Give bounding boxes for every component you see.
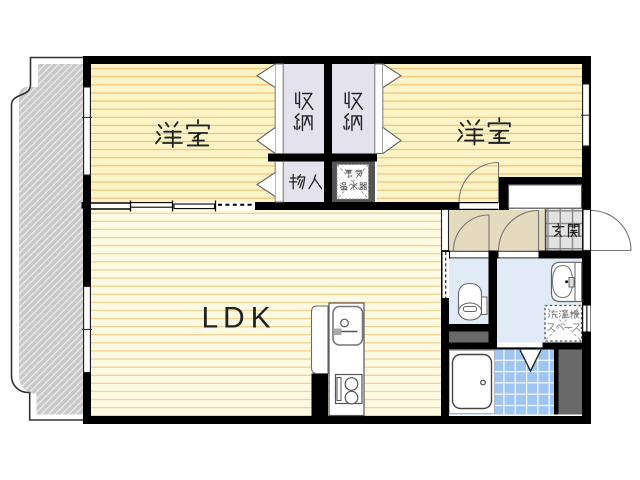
svg-text:L D K: L D K bbox=[202, 302, 271, 335]
